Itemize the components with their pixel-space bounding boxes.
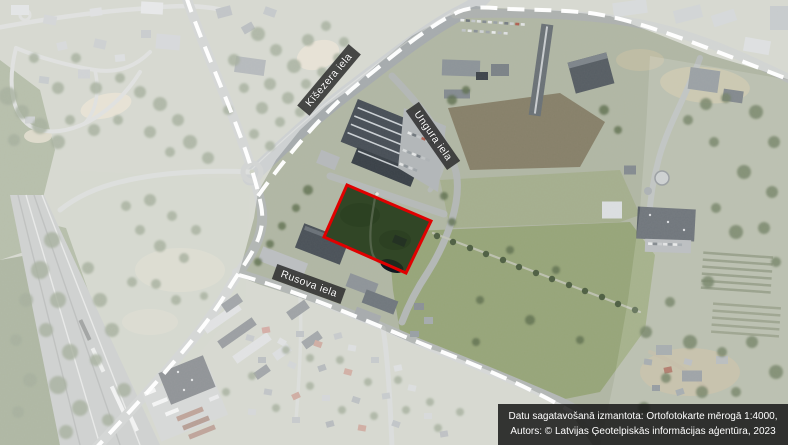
orthophoto-map: Kīšezera iela Ungura iela Rusova iela Da… — [0, 0, 788, 445]
credits-line2: Autors: © Latvijas Ģeotelpiskās informāc… — [498, 424, 788, 439]
aerial-photo — [0, 0, 788, 445]
credits-line1: Datu sagatavošanā izmantota: Ortofotokar… — [498, 409, 788, 424]
credits-box: Datu sagatavošanā izmantota: Ortofotokar… — [498, 404, 788, 445]
